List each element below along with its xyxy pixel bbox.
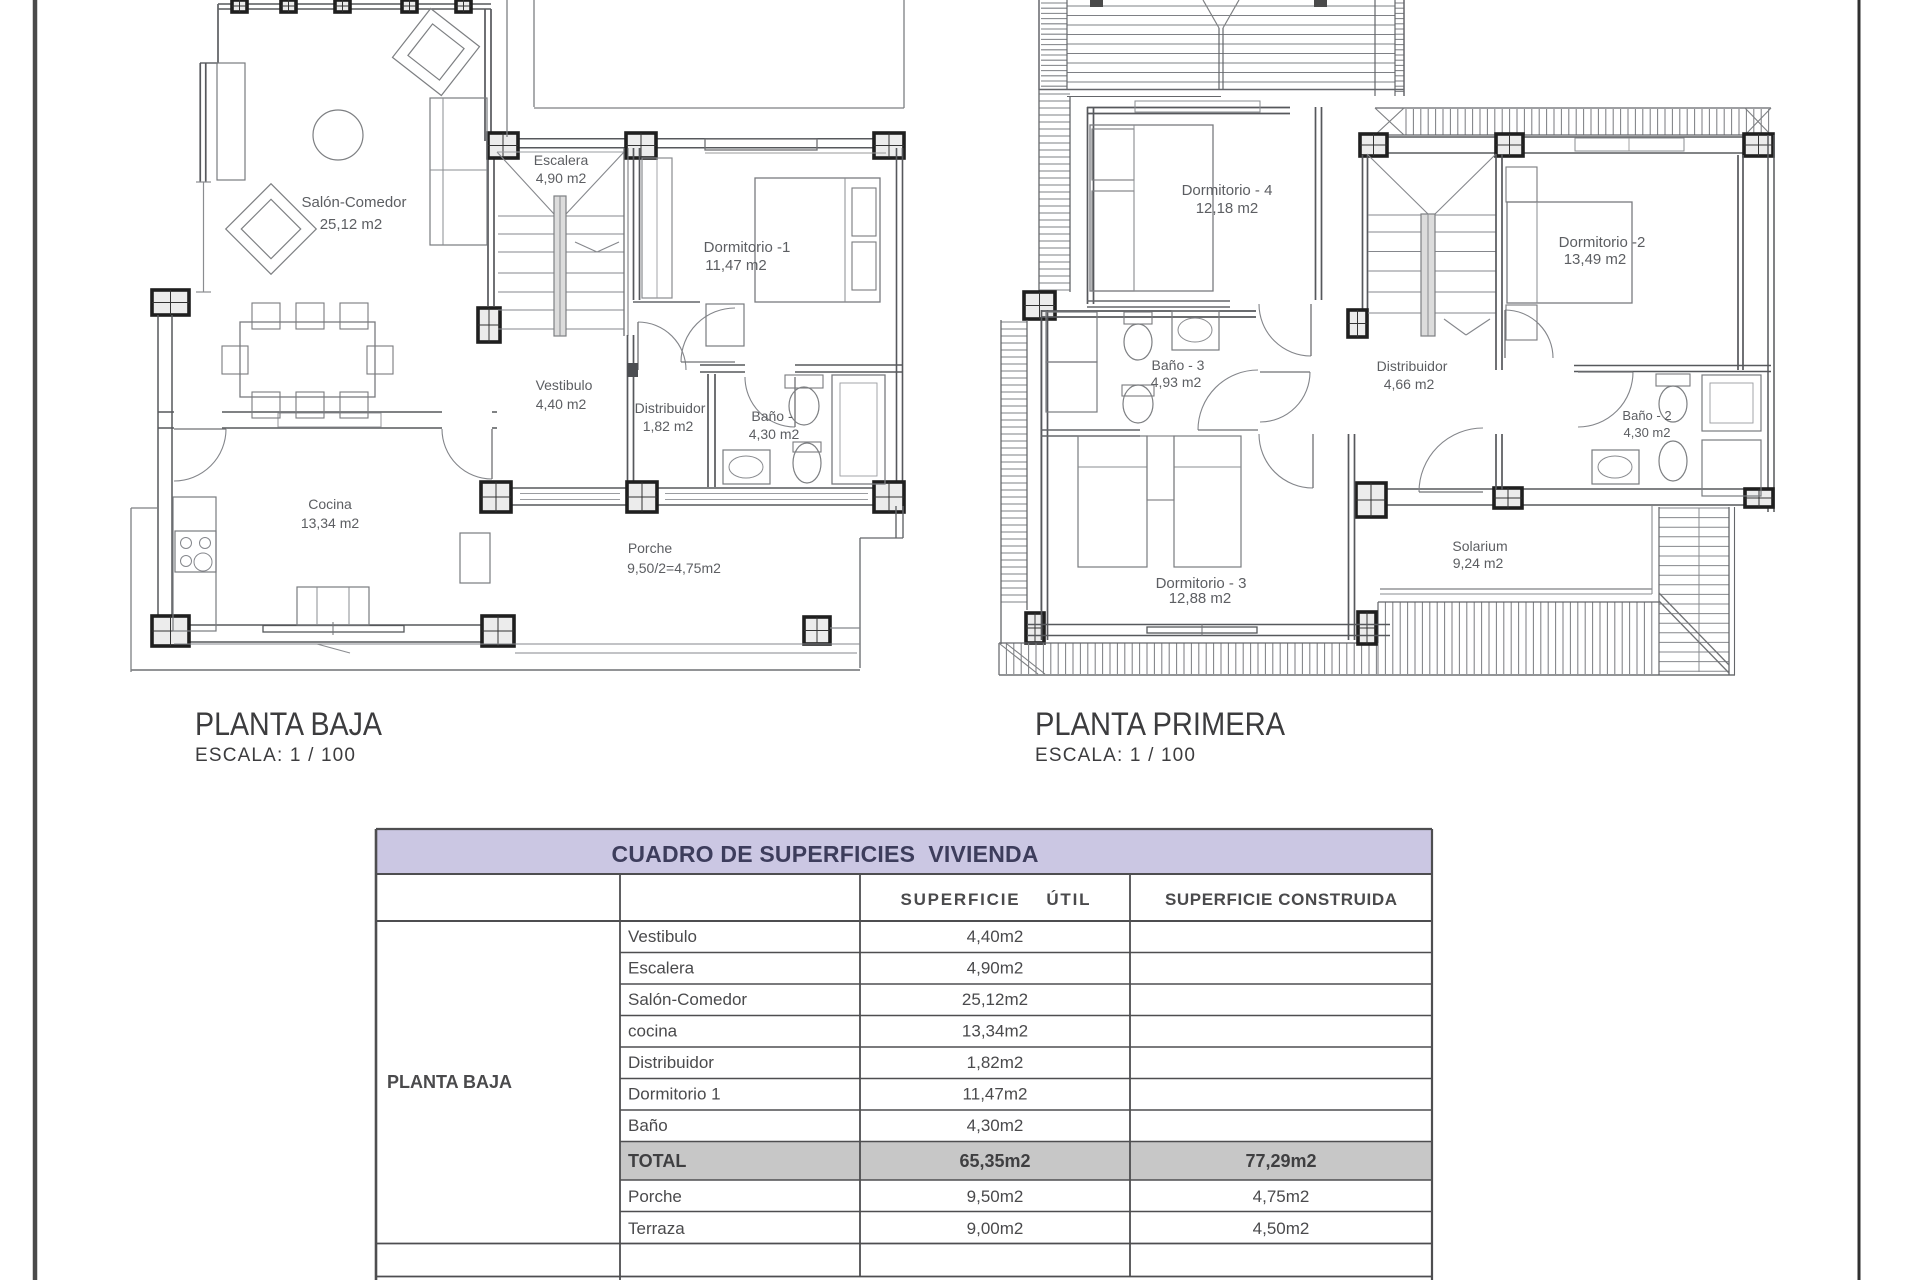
svg-text:PLANTA PRIMERA: PLANTA PRIMERA: [1035, 706, 1286, 742]
svg-text:SUPERFICIE ÚTIL: SUPERFICIE ÚTIL: [901, 890, 1090, 909]
svg-text:Dormitorio 1: Dormitorio 1: [628, 1085, 721, 1104]
svg-text:Cocina: Cocina: [308, 496, 352, 512]
svg-text:SUPERFICIE CONSTRUIDA: SUPERFICIE CONSTRUIDA: [1165, 890, 1397, 909]
svg-text:4,75m2: 4,75m2: [1253, 1187, 1310, 1206]
svg-text:Escalera: Escalera: [628, 959, 695, 978]
svg-text:1,82 m2: 1,82 m2: [643, 418, 694, 434]
svg-text:4,30m2: 4,30m2: [967, 1116, 1024, 1135]
svg-text:11,47 m2: 11,47 m2: [705, 257, 766, 274]
svg-text:1,82m2: 1,82m2: [967, 1053, 1024, 1072]
svg-text:Baño - 2: Baño - 2: [1622, 408, 1671, 423]
svg-text:Dormitorio -1: Dormitorio -1: [704, 239, 791, 256]
svg-text:13,34 m2: 13,34 m2: [301, 515, 360, 531]
svg-text:Salón-Comedor: Salón-Comedor: [301, 194, 406, 211]
svg-text:Baño: Baño: [628, 1116, 668, 1135]
svg-text:4,93 m2: 4,93 m2: [1151, 374, 1202, 390]
svg-text:4,30 m2: 4,30 m2: [749, 426, 800, 442]
svg-text:Baño -: Baño -: [751, 408, 793, 424]
svg-text:cocina: cocina: [628, 1022, 678, 1041]
svg-text:65,35m2: 65,35m2: [959, 1151, 1030, 1171]
svg-text:13,49 m2: 13,49 m2: [1564, 251, 1627, 268]
svg-text:9,24 m2: 9,24 m2: [1453, 555, 1504, 571]
svg-text:4,90 m2: 4,90 m2: [536, 170, 587, 186]
svg-text:Porche: Porche: [628, 1187, 682, 1206]
svg-text:11,47m2: 11,47m2: [963, 1085, 1028, 1104]
svg-text:CUADRO DE SUPERFICIES VIVIEND: CUADRO DE SUPERFICIES VIVIENDA: [612, 841, 1039, 867]
svg-text:Dormitorio -2: Dormitorio -2: [1559, 234, 1646, 251]
svg-text:PLANTA BAJA: PLANTA BAJA: [195, 706, 383, 742]
svg-text:PLANTA BAJA: PLANTA BAJA: [387, 1072, 512, 1092]
svg-text:12,88 m2: 12,88 m2: [1169, 590, 1232, 607]
svg-text:Dormitorio - 4: Dormitorio - 4: [1182, 182, 1273, 199]
svg-text:25,12 m2: 25,12 m2: [320, 216, 383, 233]
svg-text:13,34m2: 13,34m2: [962, 1022, 1028, 1041]
svg-text:Terraza: Terraza: [628, 1219, 685, 1238]
svg-text:Solarium: Solarium: [1452, 538, 1507, 554]
svg-text:ESCALA: 1 / 100: ESCALA: 1 / 100: [195, 745, 355, 766]
svg-text:77,29m2: 77,29m2: [1245, 1151, 1316, 1171]
svg-text:4,50m2: 4,50m2: [1253, 1219, 1310, 1238]
svg-text:4,90m2: 4,90m2: [967, 959, 1024, 978]
svg-text:Baño - 3: Baño - 3: [1152, 357, 1205, 373]
svg-text:ESCALA: 1 / 100: ESCALA: 1 / 100: [1035, 745, 1195, 766]
svg-text:Salón-Comedor: Salón-Comedor: [628, 990, 747, 1009]
svg-text:Distribuidor: Distribuidor: [628, 1053, 714, 1072]
svg-text:Vestibulo: Vestibulo: [628, 927, 697, 946]
svg-text:Escalera: Escalera: [534, 152, 589, 168]
svg-text:Porche: Porche: [628, 540, 673, 556]
svg-text:25,12m2: 25,12m2: [962, 990, 1028, 1009]
svg-text:9,00m2: 9,00m2: [967, 1219, 1024, 1238]
svg-text:4,40 m2: 4,40 m2: [536, 396, 587, 412]
svg-text:Vestibulo: Vestibulo: [536, 377, 593, 393]
svg-text:4,66 m2: 4,66 m2: [1384, 376, 1435, 392]
svg-text:Distribuidor: Distribuidor: [635, 400, 706, 416]
svg-text:4,40m2: 4,40m2: [967, 927, 1024, 946]
svg-text:Distribuidor: Distribuidor: [1377, 358, 1448, 374]
svg-text:9,50m2: 9,50m2: [967, 1187, 1024, 1206]
svg-text:TOTAL: TOTAL: [628, 1151, 686, 1171]
svg-text:4,30 m2: 4,30 m2: [1624, 425, 1671, 440]
svg-text:9,50/2=4,75m2: 9,50/2=4,75m2: [627, 560, 721, 576]
svg-text:12,18 m2: 12,18 m2: [1196, 200, 1259, 217]
